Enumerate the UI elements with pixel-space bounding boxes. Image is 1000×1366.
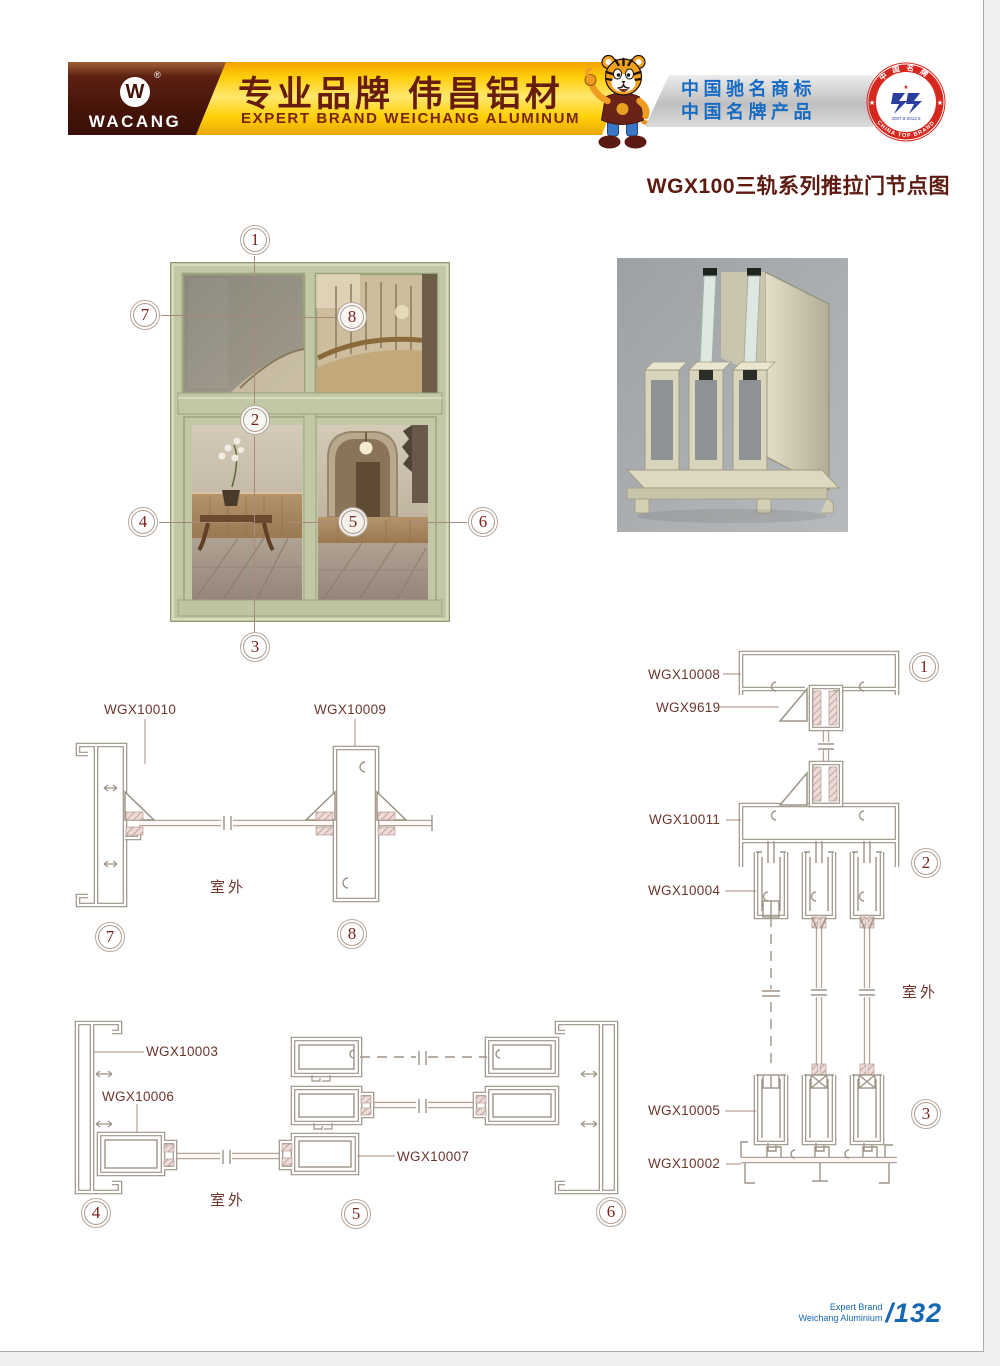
- profile-label: WGX10005: [648, 1103, 720, 1118]
- profile-label: WGX10002: [648, 1156, 720, 1171]
- outdoor-label: 室外: [202, 1189, 254, 1210]
- callout-line-7: [161, 315, 268, 316]
- seal-dates: 2007.9-2012.9: [891, 116, 921, 121]
- profile-label: WGX10011: [649, 812, 720, 827]
- honor-line-1: 中国驰名商标: [681, 78, 816, 101]
- figure-callout-1: 1: [240, 225, 270, 255]
- figure-callout-3: 3: [240, 632, 270, 662]
- profile-label: WGX10004: [648, 883, 720, 898]
- profile-label: WGX10006: [102, 1089, 174, 1104]
- banner-slogan-en: EXPERT BRAND WEICHANG ALUMINUM: [241, 110, 580, 127]
- china-top-brand-seal: 中国名牌 CHINA TOP BRAND ★ ★ ★ 2007.9-2012.9: [866, 62, 946, 142]
- section-callout-4: 4: [81, 1198, 111, 1228]
- profile-label: WGX9619: [656, 700, 720, 715]
- callout-line-8: [288, 317, 336, 318]
- sliding-door-photo: [170, 262, 450, 622]
- section-callout-1: 1: [909, 652, 939, 682]
- honor-lines: 中国驰名商标 中国名牌产品: [681, 78, 816, 124]
- callout-line-6: [405, 522, 467, 523]
- callout-line-5: [289, 522, 337, 523]
- drawing-top-horizontal-section: [60, 688, 460, 934]
- svg-text:★: ★: [869, 99, 875, 107]
- callout-line-1: [254, 256, 255, 404]
- profile-label: WGX10003: [146, 1044, 218, 1059]
- section-callout-3: 3: [911, 1099, 941, 1129]
- drawing-bottom-horizontal-section: [60, 1012, 640, 1218]
- section-callout-6: 6: [596, 1197, 626, 1227]
- figure-callout-4: 4: [128, 507, 158, 537]
- registered-mark: ®: [154, 70, 161, 80]
- catalog-page: 专业品牌 伟昌铝材 EXPERT BRAND WEICHANG ALUMINUM…: [0, 0, 984, 1352]
- profile-label: WGX10009: [314, 702, 386, 717]
- brand-name: WACANG: [72, 112, 198, 132]
- section-callout-7: 7: [95, 922, 125, 952]
- section-callout-8: 8: [337, 919, 367, 949]
- honor-line-2: 中国名牌产品: [681, 101, 816, 124]
- page-footer: Expert Brand Weichang Aluminium /132: [700, 1296, 942, 1330]
- tiger-mascot-icon: [575, 50, 670, 153]
- outdoor-label: 室外: [894, 981, 946, 1002]
- figure-callout-7: 7: [130, 300, 160, 330]
- figure-callout-6: 6: [468, 507, 498, 537]
- svg-text:★: ★: [937, 99, 943, 107]
- callout-line-4: [159, 522, 253, 523]
- callout-line-2-3: [254, 436, 255, 632]
- page-number: /132: [885, 1298, 942, 1329]
- profile-3d-render: [617, 258, 848, 532]
- outdoor-label: 室外: [202, 876, 254, 897]
- section-callout-5: 5: [341, 1199, 371, 1229]
- figure-callout-8: 8: [337, 302, 367, 332]
- section-callout-2: 2: [911, 848, 941, 878]
- wacang-logo-icon: W: [120, 77, 150, 107]
- footer-brand-line2: Weichang Aluminium: [799, 1313, 883, 1324]
- profile-label: WGX10007: [397, 1149, 469, 1164]
- honor-band: 中国驰名商标 中国名牌产品: [645, 75, 873, 127]
- page-title: WGX100三轨系列推拉门节点图: [647, 170, 950, 200]
- figure-callout-2: 2: [240, 405, 270, 435]
- profile-label: WGX10008: [648, 667, 720, 682]
- footer-brand-line1: Expert Brand: [799, 1302, 883, 1313]
- footer-brand: Expert Brand Weichang Aluminium: [799, 1302, 883, 1324]
- svg-text:★: ★: [903, 84, 908, 91]
- figure-callout-5: 5: [338, 507, 368, 537]
- profile-label: WGX10010: [104, 702, 176, 717]
